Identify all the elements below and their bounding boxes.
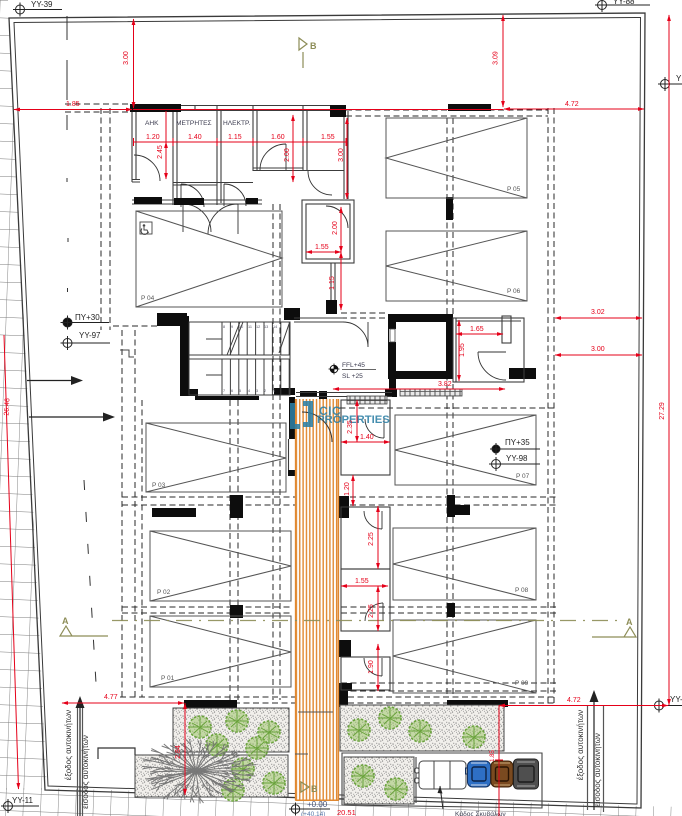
svg-text:έξοδος αυτοκινήτων: έξοδος αυτοκινήτων <box>576 710 585 780</box>
svg-text:+0.00: +0.00 <box>307 800 328 809</box>
svg-text:ΜΕΤΡΗΤΕΣ: ΜΕΤΡΗΤΕΣ <box>176 120 212 127</box>
svg-text:B: B <box>310 41 317 51</box>
svg-text:A: A <box>626 617 633 627</box>
svg-text:YY-98: YY-98 <box>506 454 528 463</box>
svg-text:11: 11 <box>248 325 252 329</box>
svg-text:P 09: P 09 <box>515 680 529 687</box>
svg-text:1.55: 1.55 <box>321 134 335 141</box>
svg-text:Y: Y <box>676 74 682 83</box>
svg-text:A: A <box>62 616 69 626</box>
svg-text:4.72: 4.72 <box>567 697 581 704</box>
svg-text:ΗΛΕΚΤΡ.: ΗΛΕΚΤΡ. <box>223 120 251 127</box>
svg-text:2: 2 <box>264 389 266 393</box>
svg-text:1.90: 1.90 <box>368 660 375 674</box>
svg-text:2.35: 2.35 <box>347 420 354 434</box>
svg-text:P 04: P 04 <box>141 295 155 302</box>
svg-text:10: 10 <box>239 325 243 329</box>
svg-text:13: 13 <box>264 325 268 329</box>
svg-text:ΠΥ+35: ΠΥ+35 <box>505 438 530 447</box>
svg-text:2.00: 2.00 <box>332 221 339 235</box>
svg-text:27.29: 27.29 <box>659 402 666 420</box>
svg-text:2.25: 2.25 <box>368 532 375 546</box>
svg-text:1.95: 1.95 <box>459 343 466 357</box>
svg-text:ΑΗΚ: ΑΗΚ <box>145 120 159 127</box>
svg-text:1.20: 1.20 <box>344 482 351 496</box>
svg-text:2.84: 2.84 <box>175 745 182 759</box>
svg-text:είσοδος αυτοκινήτων: είσοδος αυτοκινήτων <box>81 735 90 809</box>
svg-text:12: 12 <box>256 325 260 329</box>
svg-text:9: 9 <box>231 325 233 329</box>
svg-text:YY-39: YY-39 <box>31 0 53 9</box>
svg-text:1.85: 1.85 <box>66 101 80 108</box>
svg-text:3.00: 3.00 <box>123 51 130 65</box>
svg-text:14: 14 <box>273 325 277 329</box>
svg-text:8: 8 <box>223 325 225 329</box>
svg-text:3.00: 3.00 <box>338 148 345 162</box>
svg-text:P 02: P 02 <box>157 589 171 596</box>
svg-text:B: B <box>311 784 318 794</box>
svg-text:1.60: 1.60 <box>271 134 285 141</box>
svg-text:έξοδος αυτοκινήτων: έξοδος αυτοκινήτων <box>64 710 73 780</box>
svg-text:1.20: 1.20 <box>146 134 160 141</box>
svg-text:5: 5 <box>239 389 241 393</box>
svg-text:P 08: P 08 <box>515 587 529 594</box>
svg-text:3.02: 3.02 <box>591 309 605 316</box>
svg-text:1.85: 1.85 <box>490 750 496 762</box>
svg-text:1.65: 1.65 <box>470 326 484 333</box>
svg-text:YY-97: YY-97 <box>79 331 101 340</box>
svg-text:2.00: 2.00 <box>284 148 291 162</box>
svg-text:7: 7 <box>223 389 225 393</box>
svg-text:P 01: P 01 <box>161 675 175 682</box>
svg-text:FFL+45: FFL+45 <box>342 362 365 369</box>
svg-text:1.15: 1.15 <box>228 134 242 141</box>
svg-text:P 05: P 05 <box>507 186 521 193</box>
svg-text:YY-11: YY-11 <box>12 796 33 805</box>
svg-text:26.46: 26.46 <box>4 398 12 416</box>
svg-text:4.72: 4.72 <box>565 101 579 108</box>
svg-text:P 06: P 06 <box>507 288 521 295</box>
svg-text:P 07: P 07 <box>516 473 530 480</box>
svg-text:3.82: 3.82 <box>438 381 452 388</box>
svg-text:είσοδος αυτοκινήτων: είσοδος αυτοκινήτων <box>593 733 602 807</box>
svg-text:1.15: 1.15 <box>329 276 336 290</box>
svg-text:4: 4 <box>248 389 250 393</box>
svg-text:3.09: 3.09 <box>493 51 500 65</box>
svg-text:1.55: 1.55 <box>355 578 369 585</box>
svg-text:1.55: 1.55 <box>315 244 329 251</box>
svg-text:3.00: 3.00 <box>591 346 605 353</box>
svg-text:1: 1 <box>273 389 275 393</box>
svg-text:3: 3 <box>256 389 258 393</box>
svg-text:P 03: P 03 <box>152 482 166 489</box>
svg-text:6: 6 <box>231 389 233 393</box>
svg-text:20.51: 20.51 <box>337 808 356 816</box>
svg-text:1.40: 1.40 <box>188 134 202 141</box>
svg-text:SL +25: SL +25 <box>342 373 363 380</box>
svg-text:(+40.14): (+40.14) <box>301 811 325 816</box>
svg-text:2.45: 2.45 <box>157 145 164 159</box>
svg-text:ΠΥ+30: ΠΥ+30 <box>75 313 100 322</box>
svg-text:1.40: 1.40 <box>360 434 374 441</box>
svg-text:YY-88: YY-88 <box>613 0 635 6</box>
svg-text:2.25: 2.25 <box>368 604 375 618</box>
svg-text:YY-1: YY-1 <box>670 695 682 704</box>
svg-text:4.77: 4.77 <box>104 694 118 701</box>
